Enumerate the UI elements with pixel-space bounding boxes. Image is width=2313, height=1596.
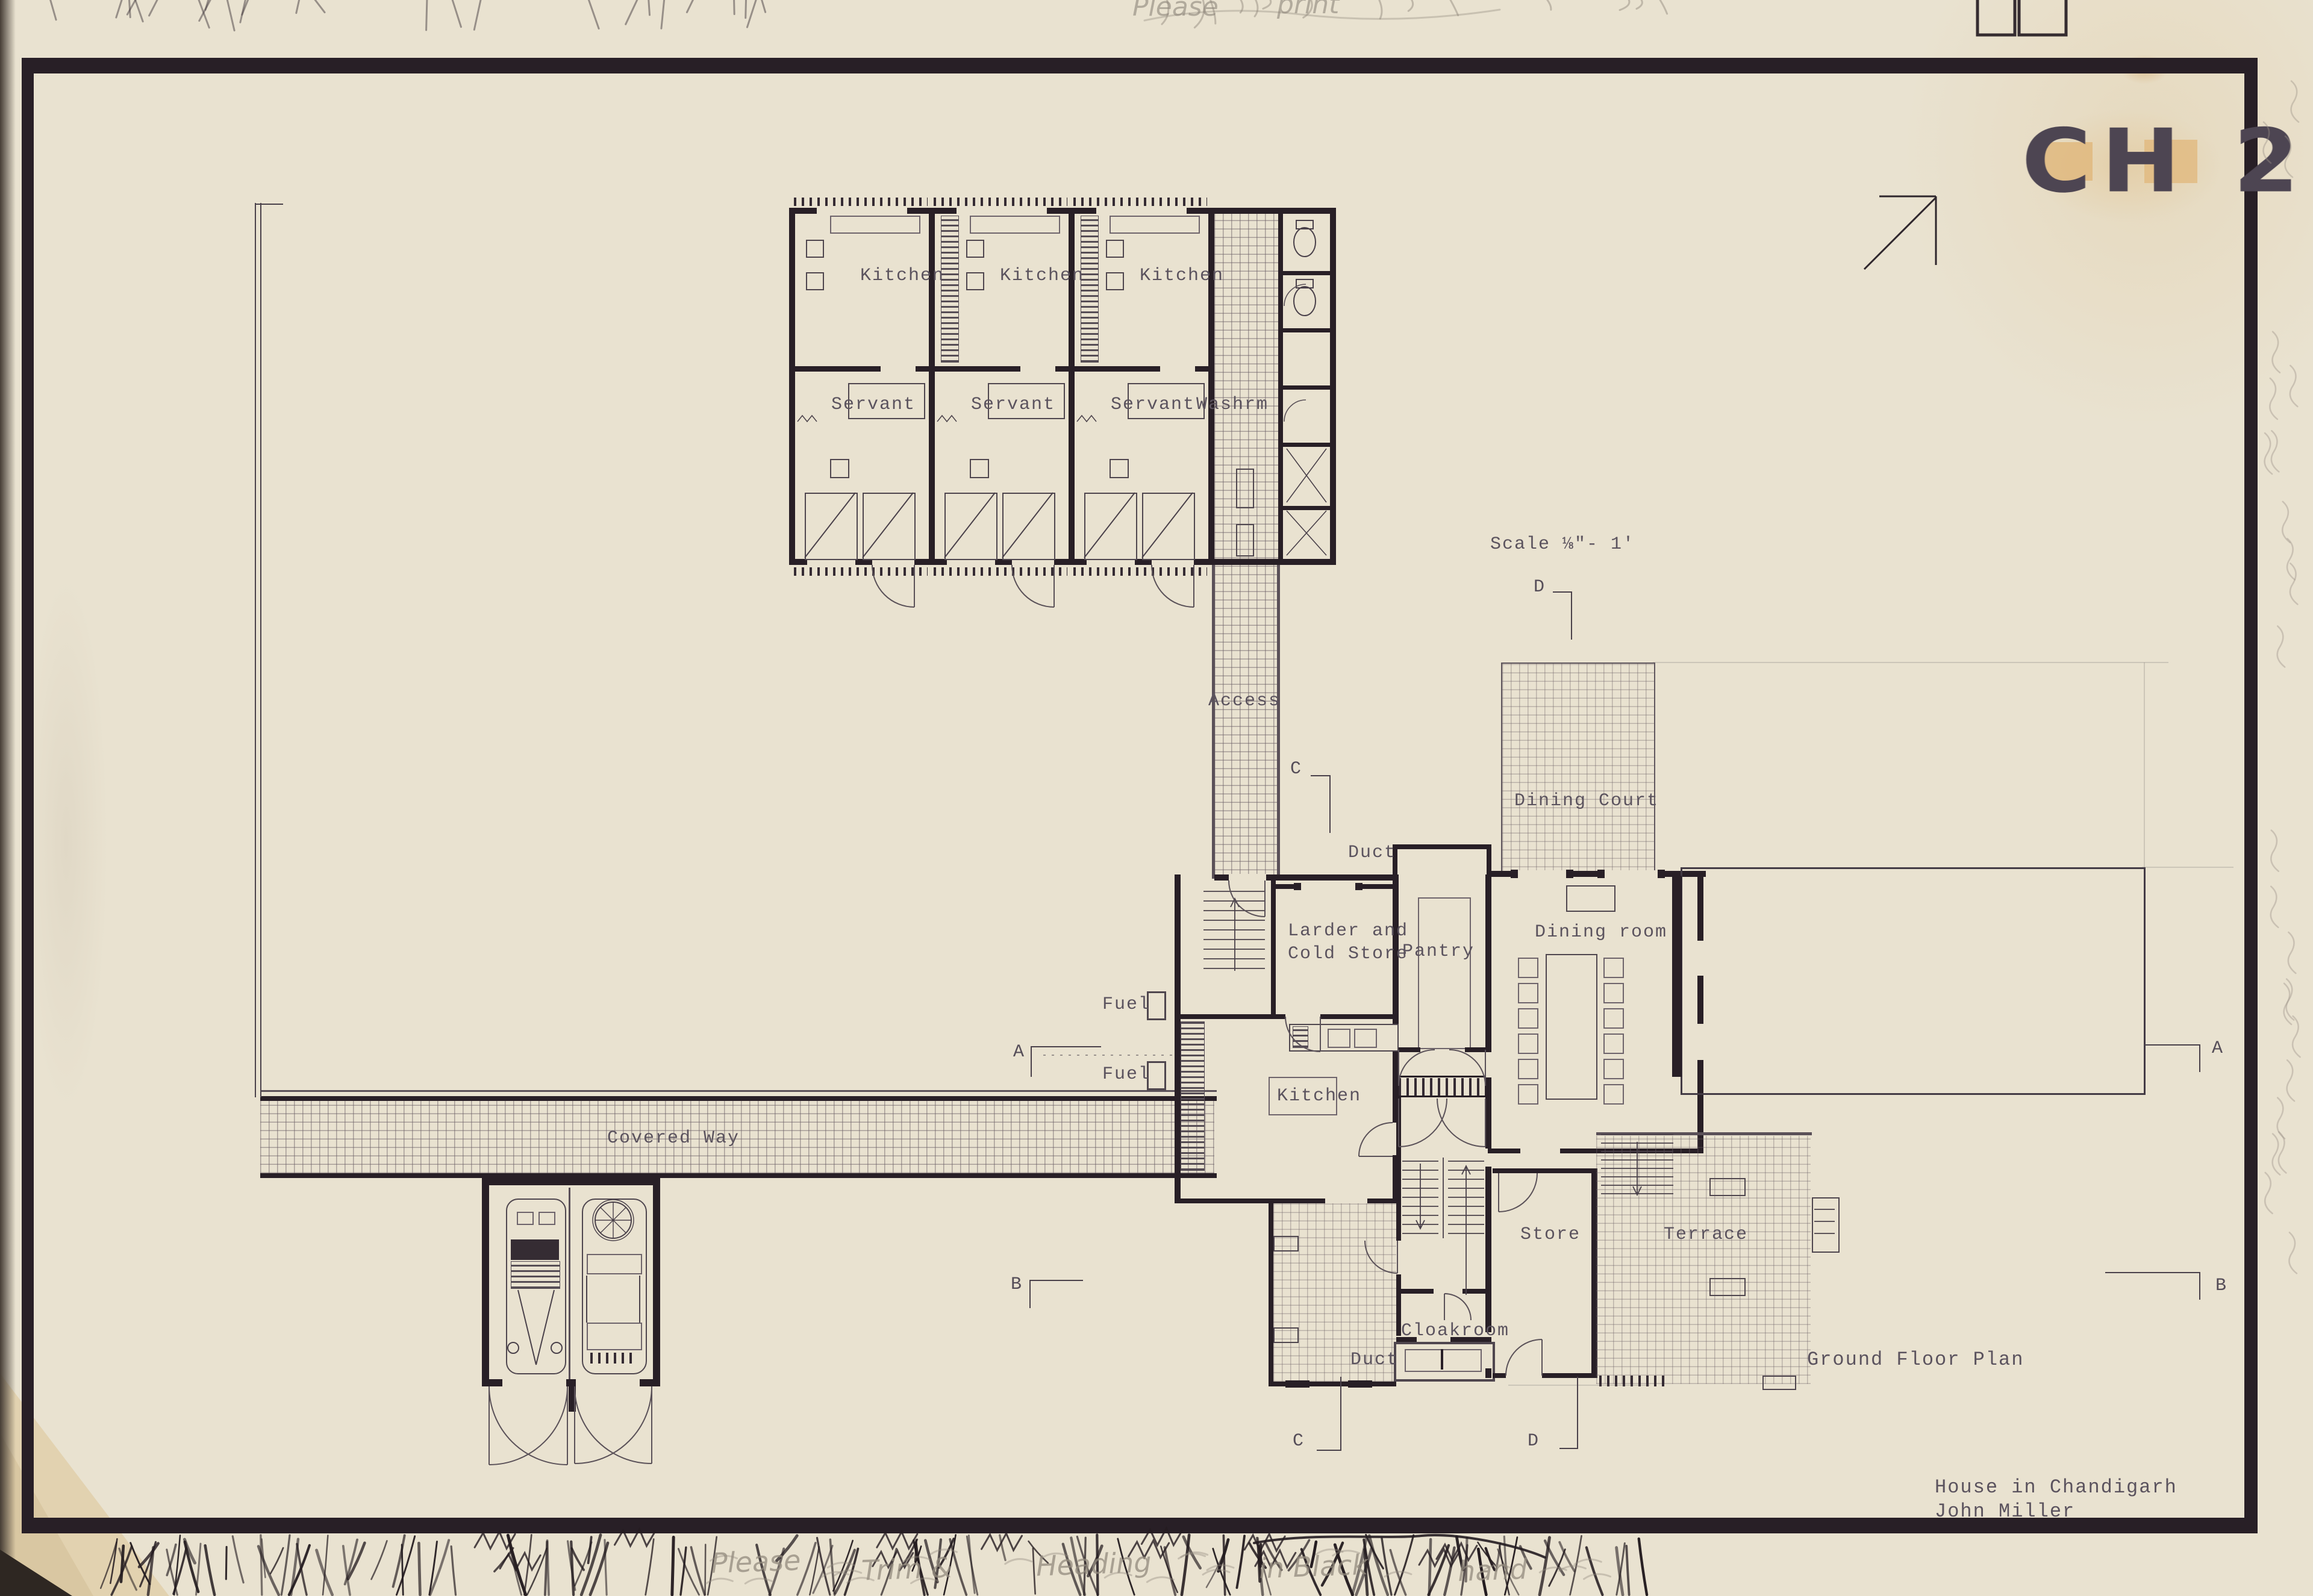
fixture-outline [587, 1323, 642, 1350]
sheet-code: CH 2 [2021, 110, 2309, 212]
chair [1603, 1008, 1624, 1029]
room-label-dining-room: Dining room [1535, 921, 1667, 944]
decoration [1399, 1099, 1447, 1147]
wall [1212, 565, 1215, 879]
decoration [2144, 1045, 2200, 1072]
wall [1697, 932, 1703, 941]
decoration [1229, 881, 1265, 917]
wall-opening [957, 207, 1047, 214]
wall-opening [1020, 366, 1055, 372]
wall [260, 1173, 1217, 1178]
wall [569, 1386, 576, 1412]
section-marker-c-bottom: C [1293, 1432, 1304, 1450]
fixture-outline [1405, 1349, 1482, 1372]
wall [1511, 870, 1518, 878]
wall [1697, 976, 1703, 984]
living-room-outline [1681, 867, 2146, 1095]
wall [1672, 876, 1682, 1077]
wall-opening [1285, 1014, 1320, 1020]
dining-court-floor [1501, 662, 1655, 877]
section-marker-d-bottom: D [1528, 1432, 1539, 1450]
decoration [1416, 1164, 1425, 1229]
wall [1697, 1060, 1703, 1068]
decoration [1437, 1099, 1485, 1147]
fixture-outline [830, 216, 920, 234]
section-marker-b-left: B [1011, 1276, 1022, 1294]
wall [482, 1178, 489, 1386]
wall [653, 1178, 660, 1386]
wall [1277, 565, 1280, 879]
decoration [2105, 1273, 2200, 1300]
decoration [1402, 1158, 1484, 1295]
hatched-wall [1181, 1021, 1205, 1171]
fixture-outline [806, 272, 824, 290]
fixture-outline [1142, 493, 1195, 560]
handwritten-note-bottom: Trim & [861, 1551, 953, 1586]
wall [1399, 1047, 1420, 1052]
decoration [1294, 220, 1316, 316]
decoration [1553, 592, 1572, 640]
wall-opening [1434, 1288, 1462, 1294]
room-label-larder-line1: Larder and [1288, 920, 1408, 943]
room-label-terrace: Terrace [1664, 1224, 1748, 1247]
wall-opening [1301, 884, 1355, 890]
wall [1393, 844, 1491, 849]
wall [1278, 208, 1283, 565]
louvre-band [590, 1353, 637, 1364]
wall [1355, 883, 1363, 890]
fixture-outline [1354, 1029, 1377, 1048]
room-label-fuel-upper: Fuel [1102, 994, 1150, 1017]
decoration [1296, 220, 1313, 229]
louvre-band [934, 198, 1067, 206]
decoration [1448, 1161, 1484, 1233]
border-bottom [22, 1518, 2258, 1533]
room-label-duct-upper: Duct [1348, 842, 1396, 865]
room-label-servant-unit3: Servant [1111, 394, 1195, 417]
wall [1283, 506, 1330, 510]
wall [1269, 1203, 1273, 1385]
drawing-sheet: CH 2 [0, 0, 2313, 1596]
room-label-kitchen-unit3: Kitchen [1140, 265, 1224, 288]
handwritten-note-bottom: Please [710, 1544, 801, 1579]
room-label-cloakroom: Cloakroom [1401, 1320, 1509, 1343]
border-top [22, 58, 2258, 73]
hatched-band [1081, 216, 1099, 363]
section-marker-b-right: B [2215, 1277, 2227, 1295]
chair [1603, 1059, 1624, 1079]
wall [1283, 443, 1330, 447]
fixture-outline [1084, 493, 1137, 560]
decoration [1294, 228, 1316, 257]
hatched-band [941, 216, 959, 363]
decoration [1231, 899, 1239, 971]
wall [1493, 1168, 1597, 1173]
wall [1566, 870, 1573, 878]
decoration [1402, 1161, 1438, 1233]
fixture-outline [830, 459, 849, 478]
section-marker-d-top: D [1534, 578, 1545, 596]
fixture-outline [944, 493, 997, 560]
wall [1069, 208, 1075, 565]
wall [1283, 328, 1330, 332]
decoration [1444, 1294, 1471, 1320]
handwritten-note-top: Please [1132, 0, 1219, 22]
room-label-duct-lower: Duct [1350, 1349, 1399, 1372]
louvre-band [1399, 1078, 1485, 1096]
handwritten-note-bottom: Heading [1035, 1546, 1152, 1583]
decoration [1462, 1166, 1470, 1295]
pantry-shelves [1418, 897, 1471, 1049]
louvre-band [1073, 567, 1207, 576]
wall [1285, 1380, 1309, 1388]
wall [1399, 1096, 1485, 1097]
fixture-outline [1110, 216, 1200, 234]
fixture-outline [517, 1212, 534, 1225]
decoration [511, 1239, 559, 1260]
scan-edge-left [0, 0, 16, 1596]
chair [1518, 1059, 1538, 1079]
fixture-outline [538, 1212, 555, 1225]
fixture-outline [1002, 493, 1055, 560]
border-left [22, 58, 34, 1533]
room-label-store: Store [1520, 1224, 1581, 1247]
wall [929, 208, 935, 565]
decoration [575, 1386, 652, 1464]
terrace-step [1812, 1197, 1840, 1253]
wall [1348, 1380, 1372, 1388]
chair [1518, 983, 1538, 1003]
wall-opening [1160, 366, 1195, 372]
room-label-covered-way: Covered Way [607, 1127, 740, 1150]
wall [1485, 874, 1491, 1378]
washroom-bench [1236, 469, 1254, 508]
wall [482, 1178, 660, 1185]
room-label-pantry: Pantry [1402, 941, 1475, 964]
wall-opening [1485, 1052, 1491, 1077]
decoration [1203, 891, 1265, 971]
room-label-kitchen-main: Kitchen [1277, 1085, 1361, 1108]
room-label-kitchen-unit2: Kitchen [1000, 265, 1084, 288]
room-label-larder-line2: Cold Store [1288, 943, 1408, 966]
washroom-bench [1236, 524, 1254, 556]
architect-name: John Miller [1935, 1500, 2075, 1524]
paper-stain [24, 572, 108, 1114]
wall-opening [1506, 1373, 1542, 1379]
section-marker-c-top: C [1290, 760, 1302, 778]
decoration [1284, 284, 1306, 422]
decoration [489, 1386, 567, 1465]
fixture-outline [1106, 272, 1124, 290]
wall-opening [1518, 870, 1566, 877]
wall-opening [817, 207, 907, 214]
wall [1330, 208, 1336, 565]
chair [1518, 1033, 1538, 1054]
planter [1709, 1178, 1746, 1196]
section-marker-a-left: A [1013, 1043, 1025, 1061]
decoration [1203, 891, 1265, 968]
chair [1603, 1084, 1624, 1105]
wall [482, 1379, 502, 1386]
wall-opening [1396, 1241, 1401, 1274]
decoration [1030, 1280, 1083, 1308]
decoration [1294, 287, 1316, 316]
fixture-outline [966, 272, 984, 290]
wall [1208, 208, 1214, 565]
decoration [1499, 1173, 1537, 1212]
section-marker-a-right: A [2212, 1040, 2223, 1058]
planter [1762, 1376, 1796, 1390]
wall [566, 1379, 576, 1386]
chair [1603, 958, 1624, 978]
chair [1518, 958, 1538, 978]
fixture-outline [966, 240, 984, 258]
fixture-outline [863, 493, 916, 560]
louvre-band [1599, 1376, 1667, 1386]
wall [569, 1188, 570, 1379]
wall [789, 208, 795, 565]
fixture-outline [970, 216, 1060, 234]
plan-title: Ground Floor Plan [1807, 1348, 2024, 1372]
room-label-servant-unit2: Servant [971, 394, 1055, 417]
planter [1273, 1327, 1299, 1343]
wall [1175, 874, 1181, 1203]
decoration [1311, 776, 1330, 833]
wall [1271, 874, 1276, 1019]
wall [260, 1090, 1217, 1092]
chair [1603, 983, 1624, 1003]
wall-opening [1520, 1148, 1560, 1154]
wall-opening [1605, 870, 1658, 877]
terrace-floor [1596, 1136, 1811, 1384]
wall [1658, 870, 1665, 878]
louvre-band [934, 567, 1067, 576]
wall [1396, 1097, 1401, 1336]
decoration [1031, 1047, 1101, 1077]
wall [1399, 1076, 1485, 1077]
room-label-washroom: Washrm [1196, 394, 1269, 417]
decoration [1287, 449, 1326, 555]
wall [1283, 385, 1330, 390]
fixture-outline [1110, 459, 1129, 478]
wall-opening [881, 366, 916, 372]
decoration [1559, 1377, 1578, 1448]
decoration [1506, 1339, 1542, 1376]
decoration [1359, 1123, 1393, 1156]
louvre-band [794, 198, 928, 206]
planter [1709, 1278, 1746, 1296]
wall [1441, 1349, 1443, 1370]
fixture-outline [1328, 1029, 1350, 1048]
wall [1179, 1014, 1276, 1019]
fixture-outline [1106, 240, 1124, 258]
room-label-servant-unit1: Servant [831, 394, 916, 417]
fixture-outline [970, 459, 989, 478]
border-right [2244, 58, 2258, 1533]
wall [1465, 1047, 1485, 1052]
chair [1603, 1033, 1624, 1054]
wall-opening [1229, 874, 1266, 881]
hatched-band [1293, 1026, 1308, 1048]
fixture-outline [587, 1254, 642, 1274]
chair [1518, 1008, 1538, 1029]
wall [640, 1379, 660, 1386]
handwritten-note-bottom: in Black [1258, 1548, 1369, 1585]
handwritten-note-top: print [1277, 0, 1339, 20]
decoration [1317, 1377, 1341, 1450]
chair [1518, 1084, 1538, 1105]
planter [1273, 1236, 1299, 1252]
hatched-band [511, 1261, 560, 1289]
louvre-band [794, 567, 928, 576]
dining-table [1546, 954, 1597, 1100]
wall [1597, 870, 1605, 878]
wall [1596, 1132, 1812, 1135]
wall [1283, 271, 1330, 275]
decoration [1296, 279, 1313, 288]
fixture-outline [805, 493, 858, 560]
scale-note: Scale ⅛"- 1' [1490, 534, 1635, 556]
wall-opening [1096, 207, 1187, 214]
room-label-kitchen-unit1: Kitchen [860, 265, 944, 288]
room-label-access: Access [1208, 690, 1281, 713]
room-label-dining-court: Dining Court [1514, 790, 1659, 813]
handwritten-note-bottom: hand [1457, 1553, 1528, 1588]
wall [1294, 883, 1301, 890]
louvre-band [1073, 198, 1207, 206]
room-label-fuel-lower: Fuel [1102, 1064, 1150, 1086]
project-name: House in Chandigarh [1935, 1476, 2177, 1500]
fixture-outline [806, 240, 824, 258]
sideboard [1566, 885, 1615, 912]
wall [260, 1096, 1217, 1101]
